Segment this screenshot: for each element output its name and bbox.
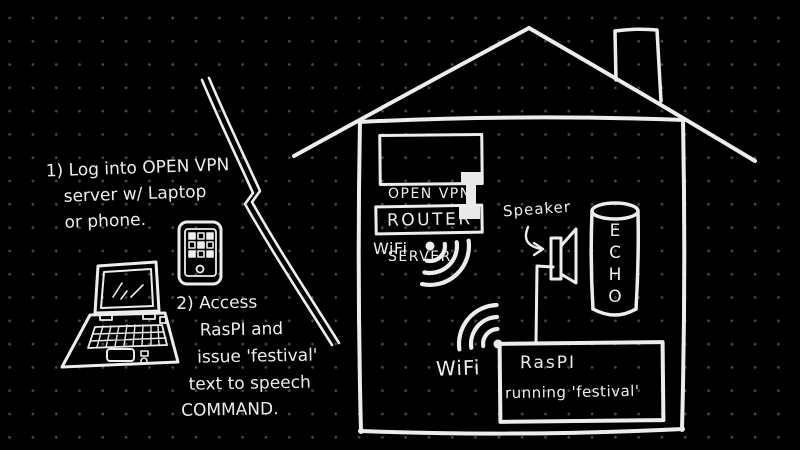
wifi-upper-label: WiFi: [373, 239, 407, 258]
laptop-icon: [62, 262, 178, 367]
arrow-icon: [526, 227, 543, 255]
step2-line: issue 'festival': [197, 347, 318, 366]
router-label: ROUTER: [387, 209, 473, 230]
step1-line: server w/ Laptop: [63, 184, 206, 206]
wifi-waves-icon: [459, 305, 502, 349]
raspi-sublabel: running 'festival': [505, 382, 640, 402]
chalkboard-diagram: 1) Log into OPEN VPN server w/ Laptop or…: [0, 0, 800, 450]
step1-line: or phone.: [64, 212, 146, 232]
step2-line: RasPI and: [200, 321, 284, 339]
step2-line: text to speech: [189, 375, 311, 394]
echo-letter: E: [605, 221, 625, 241]
echo-letter: C: [605, 243, 625, 263]
smartphone-icon: [179, 222, 221, 284]
raspi-label: RasPI: [520, 353, 576, 373]
echo-letter: O: [605, 287, 625, 307]
echo-letter: H: [605, 265, 625, 285]
step2-line: COMMAND.: [181, 401, 279, 420]
wifi-lower-label: WiFi: [436, 355, 481, 381]
step2-line: 2) Access: [176, 295, 257, 313]
speaker-icon: [551, 229, 576, 283]
